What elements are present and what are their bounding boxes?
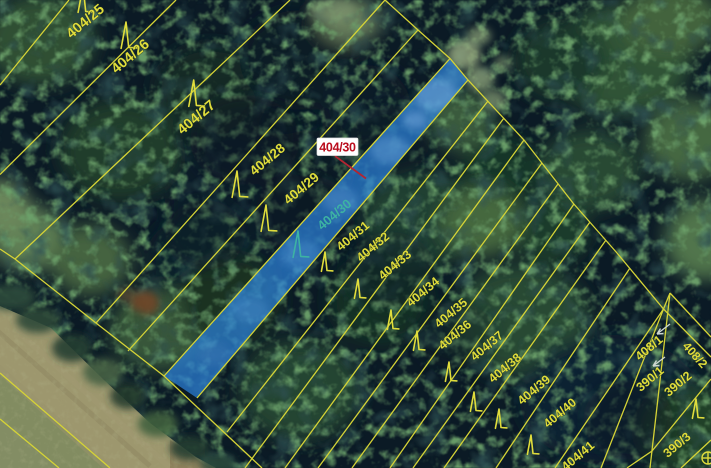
svg-text:404/30: 404/30 [319, 141, 356, 155]
